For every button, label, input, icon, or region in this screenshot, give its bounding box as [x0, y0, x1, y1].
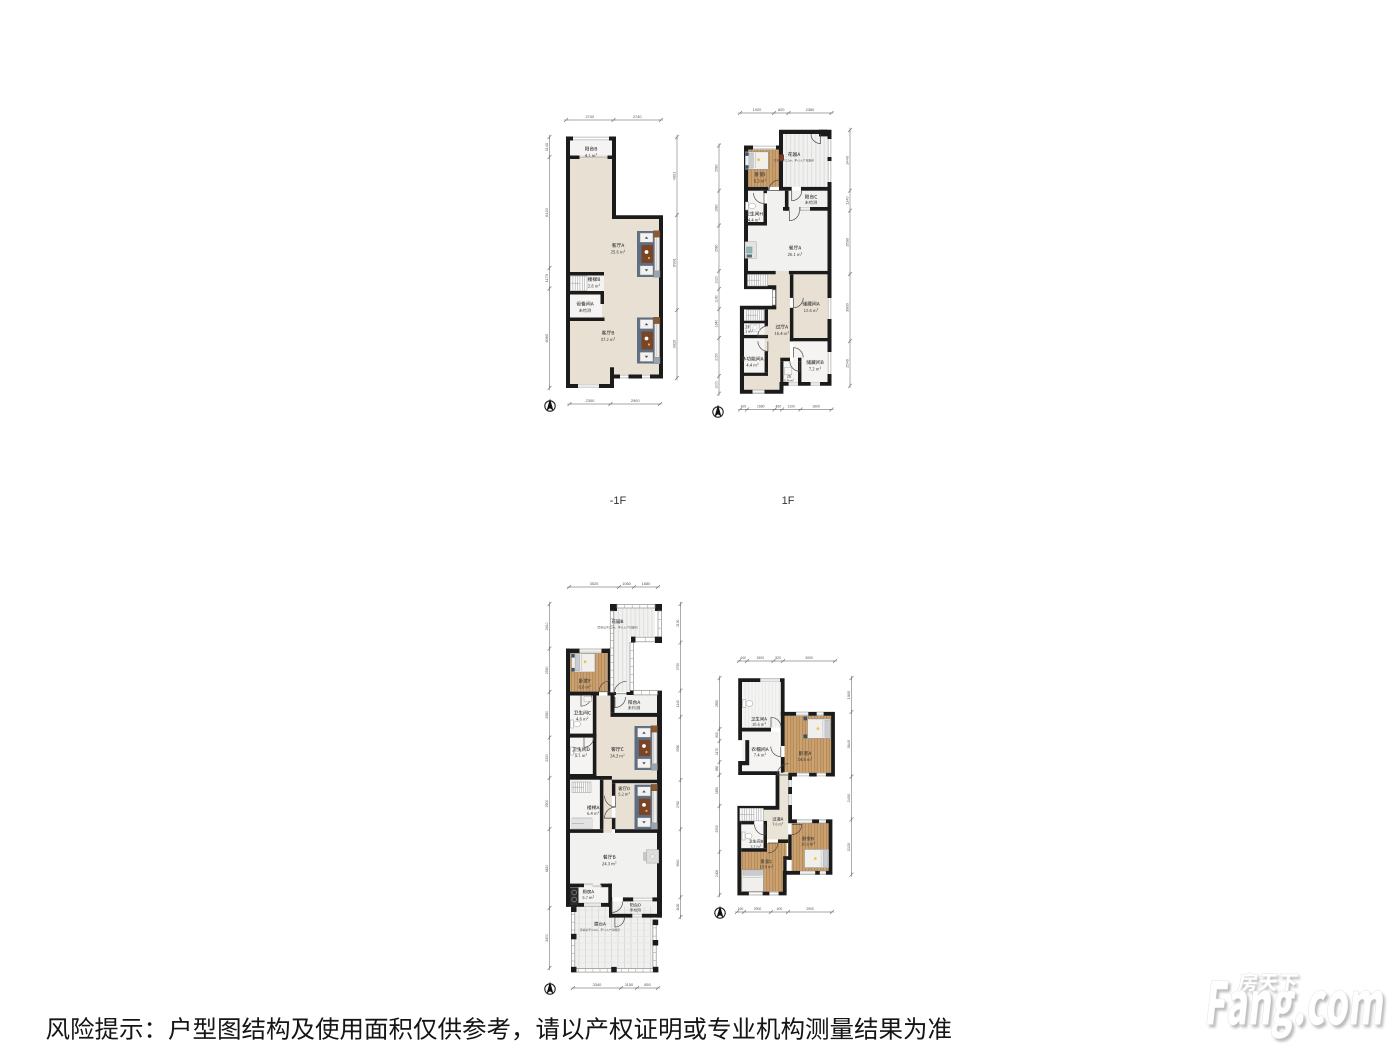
svg-text:3520: 3520 — [590, 581, 599, 586]
svg-text:2150: 2150 — [715, 353, 719, 361]
svg-text:680: 680 — [715, 766, 719, 772]
svg-text:2900: 2900 — [806, 907, 814, 911]
svg-text:3340: 3340 — [593, 982, 602, 987]
svg-text:1020: 1020 — [715, 276, 719, 284]
svg-text:2760: 2760 — [676, 801, 680, 808]
svg-text:6420: 6420 — [544, 207, 549, 216]
svg-text:2320: 2320 — [545, 754, 549, 762]
svg-text:4901: 4901 — [672, 172, 677, 181]
svg-text:3920: 3920 — [672, 339, 677, 348]
svg-text:-1F: -1F — [610, 495, 627, 507]
svg-text:1650: 1650 — [715, 787, 719, 794]
svg-text:2540: 2540 — [845, 358, 850, 367]
svg-text:2740: 2740 — [585, 114, 594, 119]
svg-text:1500: 1500 — [756, 656, 764, 660]
svg-text:2410: 2410 — [545, 622, 549, 630]
svg-text:2550: 2550 — [715, 825, 719, 832]
svg-text:2900: 2900 — [545, 800, 549, 808]
svg-text:2850: 2850 — [715, 700, 719, 707]
svg-text:2580: 2580 — [545, 711, 549, 719]
svg-text:2750: 2750 — [676, 663, 680, 670]
svg-text:3590: 3590 — [845, 237, 850, 246]
svg-text:2300: 2300 — [586, 398, 595, 403]
svg-text:850: 850 — [644, 982, 651, 987]
svg-text:2900: 2900 — [631, 398, 640, 403]
svg-text:2190: 2190 — [676, 620, 680, 627]
svg-text:1170: 1170 — [544, 273, 549, 282]
svg-text:2900: 2900 — [754, 907, 762, 911]
svg-text:3640: 3640 — [846, 739, 851, 748]
svg-text:3000: 3000 — [805, 656, 813, 660]
svg-text:6991: 6991 — [672, 258, 677, 267]
svg-text:1920: 1920 — [753, 107, 762, 112]
svg-text:3400: 3400 — [545, 934, 549, 942]
svg-text:3440: 3440 — [845, 155, 850, 164]
svg-text:2580: 2580 — [715, 244, 719, 252]
svg-text:1060: 1060 — [622, 581, 631, 586]
svg-text:3800: 3800 — [845, 302, 850, 311]
svg-text:2400: 2400 — [715, 870, 719, 877]
svg-text:1980: 1980 — [715, 204, 719, 212]
svg-text:3840: 3840 — [676, 859, 680, 866]
svg-text:1680: 1680 — [757, 405, 765, 409]
svg-text:1800: 1800 — [812, 405, 820, 409]
svg-text:160: 160 — [738, 907, 744, 911]
svg-text:2360: 2360 — [806, 107, 815, 112]
svg-text:1140: 1140 — [544, 142, 549, 151]
svg-text:2740: 2740 — [633, 114, 642, 119]
svg-text:820: 820 — [778, 107, 785, 112]
svg-text:1000: 1000 — [715, 381, 719, 389]
svg-text:6060: 6060 — [544, 333, 549, 342]
svg-text:3120: 3120 — [846, 842, 851, 851]
svg-text:1900: 1900 — [846, 690, 851, 699]
svg-text:1100: 1100 — [788, 405, 795, 409]
svg-text:2580: 2580 — [715, 164, 719, 172]
svg-text:1F: 1F — [782, 495, 795, 507]
svg-text:4420: 4420 — [545, 865, 549, 873]
svg-text:520: 520 — [775, 656, 781, 660]
svg-text:1140: 1140 — [715, 295, 719, 302]
svg-text:1100: 1100 — [676, 903, 680, 910]
svg-text:1150: 1150 — [625, 982, 634, 987]
svg-text:420: 420 — [741, 405, 747, 409]
svg-text:1140: 1140 — [845, 196, 850, 205]
svg-text:3560: 3560 — [676, 745, 680, 752]
svg-text:1640: 1640 — [715, 320, 719, 328]
svg-text:1140: 1140 — [676, 700, 680, 707]
svg-text:440: 440 — [740, 656, 746, 660]
svg-text:1680: 1680 — [642, 581, 651, 586]
svg-text:600: 600 — [715, 732, 719, 738]
svg-text:2540: 2540 — [545, 666, 549, 674]
svg-text:1170: 1170 — [715, 748, 719, 755]
svg-text:2400: 2400 — [846, 793, 851, 802]
svg-text:460: 460 — [775, 405, 781, 409]
svg-text:400: 400 — [777, 907, 783, 911]
